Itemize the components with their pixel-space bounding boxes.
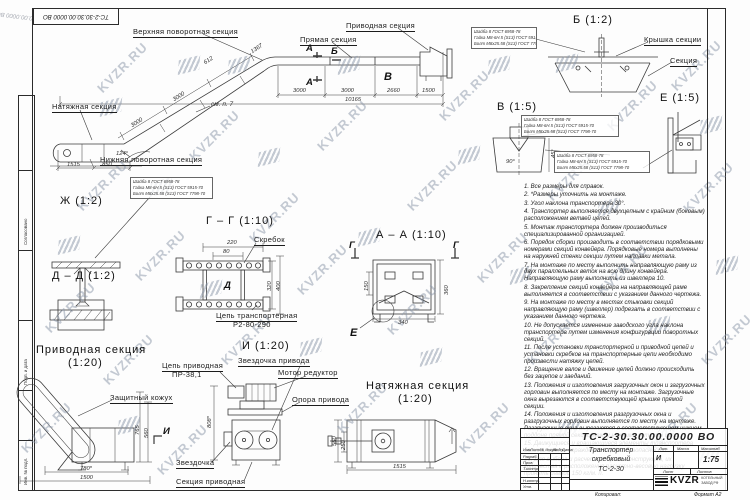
dim-808: 808* [207,416,213,428]
label-scraper: Скребок [254,235,285,246]
strip-label-soglasovano: Согласовано [23,219,28,245]
dim-3000-a: 3000 [293,88,306,94]
logo-text: KVZR [670,475,699,486]
view-title-b: Б (1:2) [573,14,613,26]
label-drive-support: Опора привода [292,395,349,406]
sheet-header: Лист [663,469,673,474]
dim-1500: 1500 [422,88,435,94]
dim-2660: 2660 [387,88,400,94]
label-conveyor-chain-2: Р2-80-290 [233,320,271,329]
view-title-zh: Ж (1:2) [60,195,103,207]
dim-80: 80 [223,249,229,255]
engineering-drawing-sheet: ТС-2-30.30.00.0000 ВО Согласовано Подп. … [0,0,750,500]
note-item: 9. На монтаже по месту в местах стыковки… [524,300,705,321]
corner-stamp-text: ТС-2-30.30.00.0000 ВО [43,13,109,20]
note-item: 12. Вращение валов и движение цепей долж… [524,367,705,381]
sheets-header: Листов [697,469,712,474]
dim-850: 850 [102,162,112,168]
view-mark-v: В [384,71,392,83]
title-name-line1: Транспортер [569,446,653,455]
view-mark-b: Б [331,46,338,57]
dim-angle-124: 124° [116,151,128,157]
tension-section-drawing [328,420,456,474]
view-title-v: В (1:5) [497,101,537,113]
view-title-tension-section-scale: (1:20) [398,393,433,405]
dim-90deg: 90° [506,159,515,165]
row-prov: Пров. [523,460,534,465]
dim-400: 400 [276,281,282,291]
view-title-gg: Г – Г (1:10) [206,215,274,227]
strip-divider [18,440,33,441]
logo-subtext-2: ЗАВОД РФ [701,481,722,485]
view-mark-i: И [163,426,170,437]
spec-line: Болт М8х25.58 (S13) ГОСТ 7798-70 [557,165,647,171]
note-item: 2. *Размеры уточнить на монтаже. [524,192,705,199]
col-date: Дата [562,447,573,452]
dim-1515-tension: 1515 [393,464,406,470]
label-upper-turn-section: Верхняя поворотная секция [133,27,238,38]
view-dd-drawing [50,300,112,330]
dim-3000-b: 3000 [341,88,354,94]
title-name: Транспортер скребковый ТС-2-30 [569,446,653,474]
spec-callout-zh: Шайба 8 ГОСТ 6958-78 Гайка М8-6Н.5 (S13)… [130,177,213,199]
logo-subtext-1: КОТЕЛЬНЫЙ [701,476,722,480]
dim-1500-drive: 1500 [80,475,93,481]
logo-bars-icon [655,476,668,486]
see-note-ref: см. п. 7 [211,101,233,108]
view-title-i: И (1:20) [242,340,290,352]
note-item: 4. Транспортер выполняется двухцепным с … [524,209,705,223]
note-item: 1. Все размеры для справок. [524,184,705,191]
title-name-line3: ТС-2-30 [569,465,653,474]
row-nkontr: Н.контр. [523,478,540,483]
view-title-tension-section: Натяжная секция [366,380,469,392]
label-section: Секция [670,56,697,67]
strip-divider [18,320,33,321]
label-drive-section: Приводная секция [346,21,415,32]
label-guard: Защитный кожух [110,393,173,404]
strip-label-podp-data: Подп. и дата [23,359,28,385]
title-block: ТС-2-30.30.00.0000 ВО Транспортер скребк… [520,428,728,491]
view-title-e: Е (1:5) [660,92,700,104]
note-item: 7. На монтаже по месту выполнить направл… [524,263,705,284]
lit-header: Лит. [659,446,668,451]
title-name-line2: скребковый [569,455,653,464]
strip-divider [18,390,33,391]
detail-mark-e: Е [350,327,357,339]
note-item: 10. Не допускается изменение заводского … [524,323,705,344]
view-i-drawing [210,366,306,481]
view-gg-drawing [176,243,284,314]
dim-320: 320 [267,281,273,291]
dim-220: 220 [227,240,237,246]
section-mark-a-bottom: А [306,77,313,88]
dim-340: 340 [398,320,408,326]
row-utv: Утв. [523,484,532,489]
strip-divider [18,170,33,171]
spec-callout-e: Шайба 8 ГОСТ 6958-78 Гайка М8-6Н.5 (S13)… [554,151,650,173]
col-list: Лист [530,447,540,452]
dim-1515-base: 1515 [67,162,80,168]
strip-divider [18,250,33,251]
view-title-drive-section: Приводная секция [36,344,146,356]
strip-label-inv-podl: Инв. № подл. [23,458,28,485]
view-title-dd: Д – Д (1:2) [52,270,116,282]
label-drive-section-part: Секция приводная [176,477,245,488]
dim-250: 250 [341,440,347,450]
dim-560-tension: 560 [332,436,338,446]
dim-780: 780* [80,466,92,472]
spec-callout-v: Шайба 8 ГОСТ 6958-78 Гайка М8-6Н.5 (S13)… [521,115,619,137]
lit-value: И [656,455,661,462]
logo-subtext: КОТЕЛЬНЫЙ ЗАВОД РФ [701,476,722,485]
dim-360: 360 [444,285,450,295]
view-zh-drawing [52,197,150,306]
title-doc-number: ТС-2-30.30.00.0000 ВО [571,431,726,443]
company-logo: KVZR КОТЕЛЬНЫЙ ЗАВОД РФ [655,475,722,486]
note-item: 8. Закрепление секций конвейера на напра… [524,285,705,299]
note-item: 13. Положения и изготовления загрузочных… [524,383,705,411]
dim-150: 150 [364,281,370,291]
view-title-aa: А – А (1:10) [376,229,447,241]
mass-header: Масса [677,446,689,451]
section-mark-a-top: А [306,43,313,54]
notes-column-border [707,8,708,428]
scale-value: 1:75 [703,455,719,464]
dim-total-10165: 10165 [345,97,361,103]
label-motor-reducer: Мотор редуктор [278,368,338,379]
spec-line: Болт М8х25.58 (S13) ГОСТ 7798-70 [474,41,534,47]
spec-line: Болт М8х25.58 (S13) ГОСТ 7798-70 [133,191,210,197]
note-item: 5. Монтаж транспортера должен производит… [524,225,705,239]
section-mark-d: Д [224,280,231,291]
note-item: 11. После установки транспортерной и при… [524,345,705,366]
view-title-drive-section-scale: (1:20) [68,357,103,369]
label-drive-sprocket: Звездочка привода [238,356,310,367]
row-tkontr: Т.контр. [523,466,539,471]
corner-stamp-box: ТС-2-30.30.00.0000 ВО [33,8,119,25]
label-section-cover: Крышка секции [644,35,701,46]
label-tension-section: Натяжная секция [52,102,117,113]
row-razrab: Разраб. [523,454,537,459]
section-mark-g-right: Г [453,240,459,251]
label-sprocket: Звездочка [176,458,214,469]
section-mark-g-left: Г [349,240,355,251]
spec-callout-b: Шайба 8 ГОСТ 6958-78 Гайка М8-6Н.5 (S13)… [471,27,537,49]
scale-header: Масштаб [701,446,720,451]
dim-560-drive: 560 [144,428,150,438]
note-item: 6. Порядок сборки производить в соответс… [524,240,705,261]
label-drive-chain-2: ПР-38,1 [172,370,202,379]
view-e-drawing [643,112,701,173]
dim-765: 765 [135,425,141,435]
note-item: 3. Угол наклона транспортера 30°. [524,201,705,208]
spec-line: Болт М8х25.58 (S13) ГОСТ 7798-70 [524,129,616,135]
